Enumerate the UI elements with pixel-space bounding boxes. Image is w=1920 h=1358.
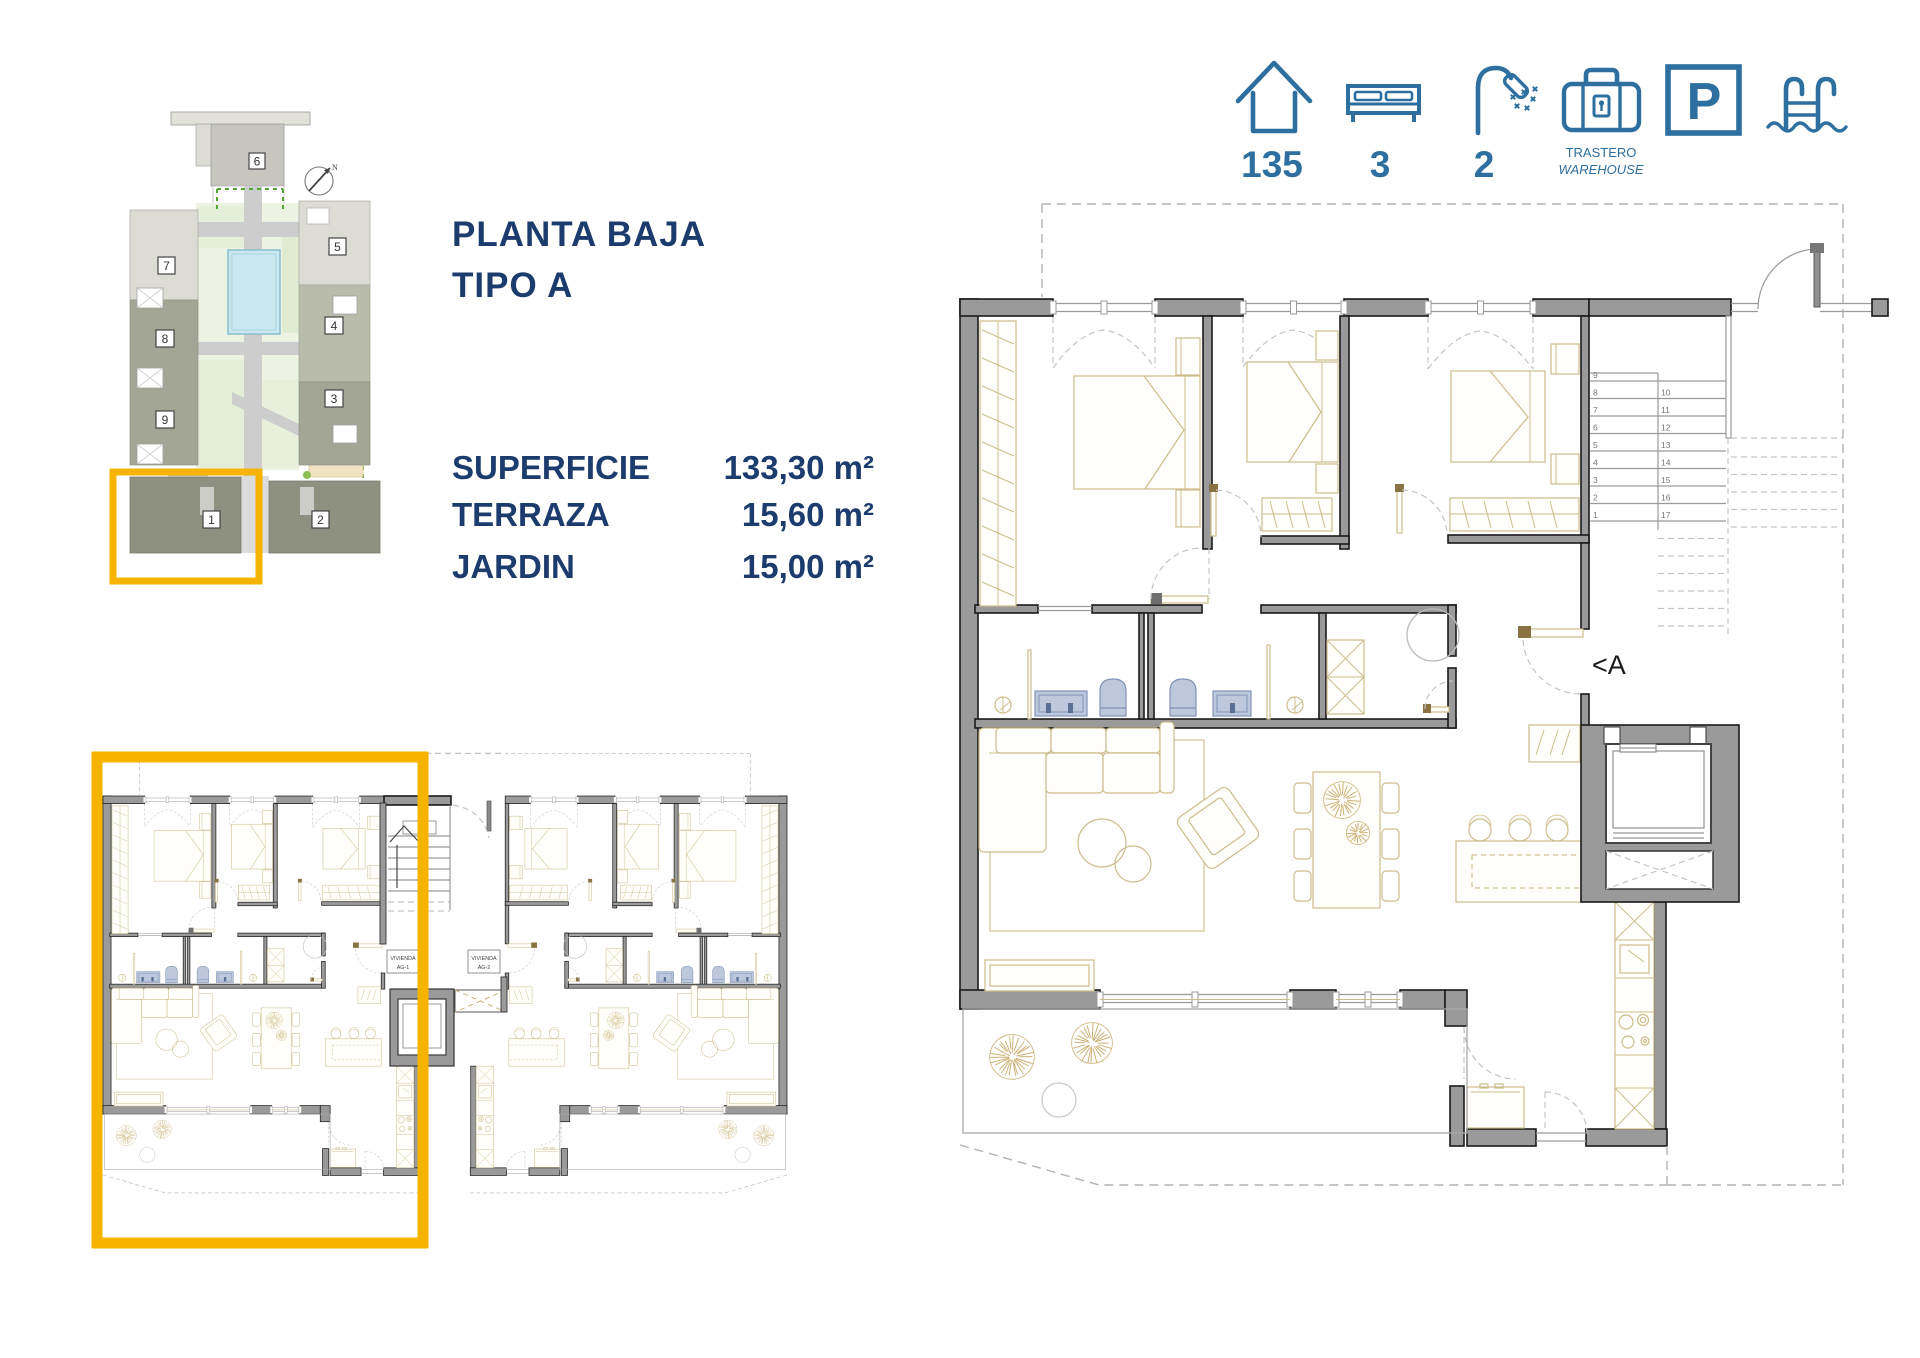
- svg-text:7: 7: [163, 259, 170, 273]
- svg-text:15,00 m²: 15,00 m²: [742, 548, 874, 585]
- svg-text:4: 4: [1593, 458, 1598, 468]
- svg-text:TERRAZA: TERRAZA: [452, 496, 610, 533]
- svg-text:12: 12: [1661, 423, 1671, 433]
- svg-text:8: 8: [162, 332, 169, 346]
- svg-text:4: 4: [331, 319, 338, 333]
- svg-text:SUPERFICIE: SUPERFICIE: [452, 449, 650, 486]
- svg-text:TIPO A: TIPO A: [452, 266, 573, 305]
- svg-text:VIVIENDA: VIVIENDA: [471, 956, 497, 962]
- svg-text:1: 1: [1593, 510, 1598, 520]
- svg-text:3: 3: [1370, 144, 1391, 185]
- svg-text:14: 14: [1661, 458, 1671, 468]
- svg-text:3: 3: [331, 392, 338, 406]
- svg-text:P: P: [1687, 73, 1722, 131]
- svg-text:1: 1: [208, 513, 215, 527]
- svg-text:2: 2: [317, 513, 324, 527]
- svg-text:9: 9: [1593, 370, 1598, 380]
- svg-text:6: 6: [254, 155, 261, 169]
- svg-text:11: 11: [1661, 405, 1670, 415]
- svg-text:9: 9: [162, 413, 169, 427]
- svg-text:VIVIENDA: VIVIENDA: [390, 956, 416, 962]
- svg-text:JARDIN: JARDIN: [452, 548, 575, 585]
- svg-text:WAREHOUSE: WAREHOUSE: [1559, 162, 1644, 177]
- svg-text:17: 17: [1661, 510, 1671, 520]
- svg-text:8: 8: [1593, 388, 1598, 398]
- svg-text:5: 5: [1593, 440, 1598, 450]
- svg-text:AG-2: AG-2: [478, 965, 491, 971]
- svg-text:N: N: [332, 163, 338, 172]
- svg-text:7: 7: [1593, 405, 1598, 415]
- svg-text:6: 6: [1593, 423, 1598, 433]
- svg-text:133,30 m²: 133,30 m²: [724, 449, 874, 486]
- svg-text:15: 15: [1661, 475, 1671, 485]
- svg-text:13: 13: [1661, 440, 1671, 450]
- svg-text:2: 2: [1593, 493, 1598, 503]
- svg-text:PLANTA BAJA: PLANTA BAJA: [452, 215, 706, 254]
- svg-text:16: 16: [1661, 493, 1671, 503]
- svg-text:2: 2: [1474, 144, 1495, 185]
- svg-text:TRASTERO: TRASTERO: [1566, 145, 1637, 160]
- svg-text:10: 10: [1661, 388, 1671, 398]
- svg-text:AG-1: AG-1: [397, 965, 410, 971]
- svg-text:5: 5: [334, 240, 341, 254]
- svg-text:15,60 m²: 15,60 m²: [742, 496, 874, 533]
- svg-text:<A: <A: [1592, 650, 1626, 680]
- svg-text:3: 3: [1593, 475, 1598, 485]
- svg-text:135: 135: [1241, 144, 1303, 185]
